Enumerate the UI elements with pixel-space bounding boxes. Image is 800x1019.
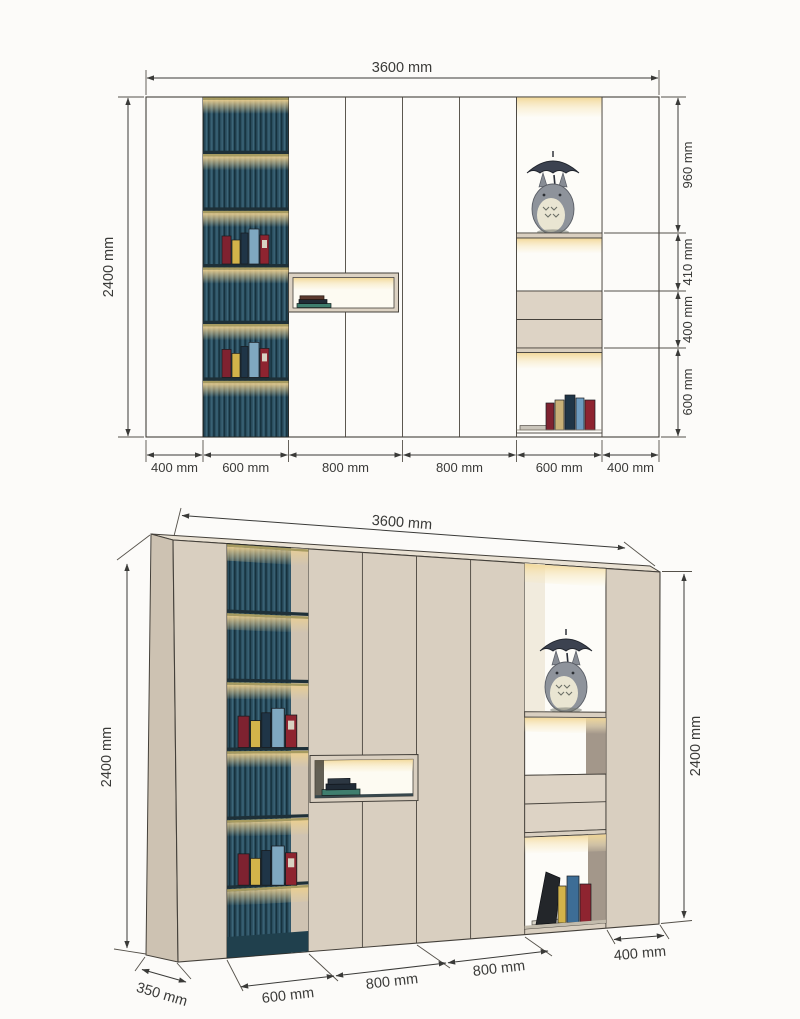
dim-label-800a: 800 mm (365, 971, 419, 993)
dim-label-b800b: 800 mm (436, 460, 483, 475)
dim-label-height-right: 2400 mm (688, 716, 704, 776)
shelf-board (517, 233, 603, 238)
perspective-view: 3600 mm 2400 mm 2400 mm 350 mm (99, 508, 704, 1010)
display-column-perspective (525, 563, 606, 929)
bookshelf-column (203, 97, 289, 437)
open-shelf-niche-perspective (310, 755, 418, 803)
bookshelf-column-perspective (227, 544, 308, 958)
dim-label-960: 960 mm (680, 142, 695, 189)
dim-height-right-perspective: 2400 mm (661, 572, 704, 924)
display-column (517, 97, 603, 433)
drawers (525, 774, 606, 833)
dim-label-b800a: 800 mm (322, 460, 369, 475)
shelf-board (525, 712, 606, 718)
dim-label-b400l: 400 mm (151, 460, 198, 475)
dim-label-600: 600 mm (261, 985, 315, 1007)
dim-label-height-left: 2400 mm (99, 727, 115, 787)
dim-depth: 350 mm (134, 957, 191, 1010)
drawers (517, 291, 603, 348)
drawing-canvas: 3600 mm 2400 mm 960 mm 410 mm 400 mm 600… (0, 0, 800, 1019)
dim-label-height: 2400 mm (101, 237, 117, 297)
front-elevation: 3600 mm 2400 mm 960 mm 410 mm 400 mm 600… (101, 60, 695, 475)
dim-right-segments: 960 mm 410 mm 400 mm 600 mm (604, 97, 695, 437)
dim-height-left-perspective: 2400 mm (99, 535, 150, 954)
cabinet-dimension-drawing: 3600 mm 2400 mm 960 mm 410 mm 400 mm 600… (0, 0, 800, 1019)
dim-bottom-segments: 400 mm 600 mm 800 mm 800 mm 600 mm 400 m… (146, 440, 659, 475)
dim-label-depth: 350 mm (134, 980, 189, 1010)
dim-label-b400r: 400 mm (607, 460, 654, 475)
dim-width-top: 3600 mm (146, 60, 659, 95)
dim-label-400: 400 mm (613, 944, 667, 965)
dim-label-410: 410 mm (680, 239, 695, 286)
dim-label-width: 3600 mm (372, 60, 432, 76)
dim-label-600: 600 mm (680, 369, 695, 416)
dim-label-b600l: 600 mm (222, 460, 269, 475)
dim-height-left: 2400 mm (101, 97, 144, 437)
dim-bottom-right: 400 mm (607, 925, 669, 964)
dim-label-b600r: 600 mm (536, 460, 583, 475)
open-shelf-niche (289, 273, 399, 312)
dim-label-800b: 800 mm (472, 958, 526, 980)
dim-label-400: 400 mm (680, 296, 695, 343)
